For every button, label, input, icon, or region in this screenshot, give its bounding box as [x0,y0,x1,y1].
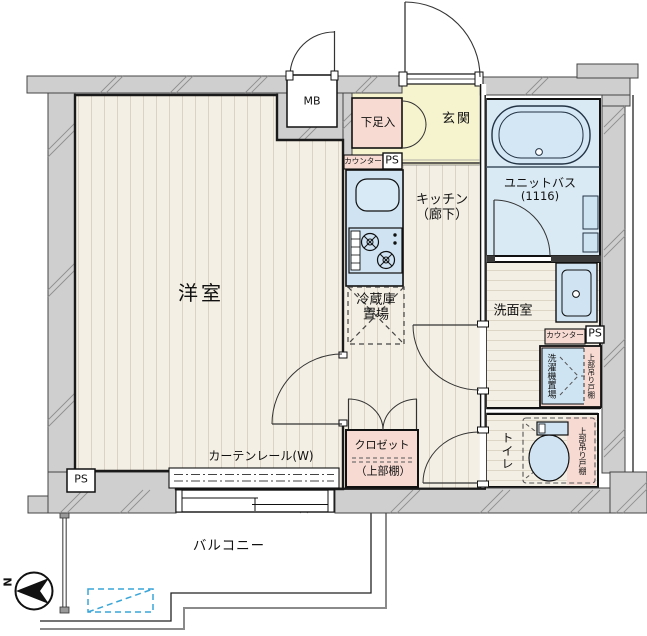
kitchen-sink [356,179,399,211]
refrigerator-label: 冷蔵庫 置場 [356,293,395,324]
north-label: N [3,577,16,586]
counter-label-kitchen: カウンター [344,158,382,167]
toilet-label: トイレ [501,432,513,471]
balcony-outline [40,513,386,629]
unit-bath-label-line1: ユニットバス [504,176,576,190]
floor-plan: 洋室 キッチン （廊下） 玄関 ユニットバス (1116) 洗面室 トイレ クロ… [0,0,647,636]
western-room-label: 洋室 [178,282,224,306]
north-compass-icon [16,573,53,610]
curtain-rail-label: カーテンレール(W) [208,449,313,463]
kitchen-label: キッチン （廊下） [416,193,468,224]
kitchen-stove [349,228,402,273]
kitchen-label-line1: キッチン [416,193,468,208]
closet-label: クロゼット [355,440,410,453]
closet-note-label: （上部棚） [356,466,411,479]
ps-label-kitchen: PS [385,155,399,168]
unit-bath-size: (1116) [504,190,576,204]
curtain-rail [169,468,339,488]
washroom-label: 洗面室 [493,303,532,318]
balcony-window [176,490,334,512]
balcony-label: バルコニー [193,539,265,555]
bath-shelves [583,196,598,252]
kitchen-label-line2: （廊下） [416,208,468,223]
upper-cabinet-label-washroom: 上部吊り戸棚 [587,354,595,399]
mb-label: MB [303,96,320,109]
washbasin [556,263,597,322]
floor-plan-drawing [0,0,647,636]
counter-label-washroom: カウンター [546,332,584,341]
refrigerator-label-line1: 冷蔵庫 [356,293,395,308]
meter-box [286,31,338,127]
ps-label-washroom: PS [588,328,602,341]
ps-label-bottom-left: PS [74,474,88,487]
shoe-box-label: 下足入 [361,116,396,130]
unit-bath-label: ユニットバス (1116) [504,176,576,204]
washing-machine-label: 洗濯機置場 [546,354,555,399]
balcony-hatch-marker [88,589,153,612]
entrance-label: 玄関 [442,111,472,126]
upper-cabinet-label-toilet: 上部吊り戸棚 [578,427,586,475]
refrigerator-label-line2: 置場 [356,308,395,323]
entrance-door [399,2,483,86]
